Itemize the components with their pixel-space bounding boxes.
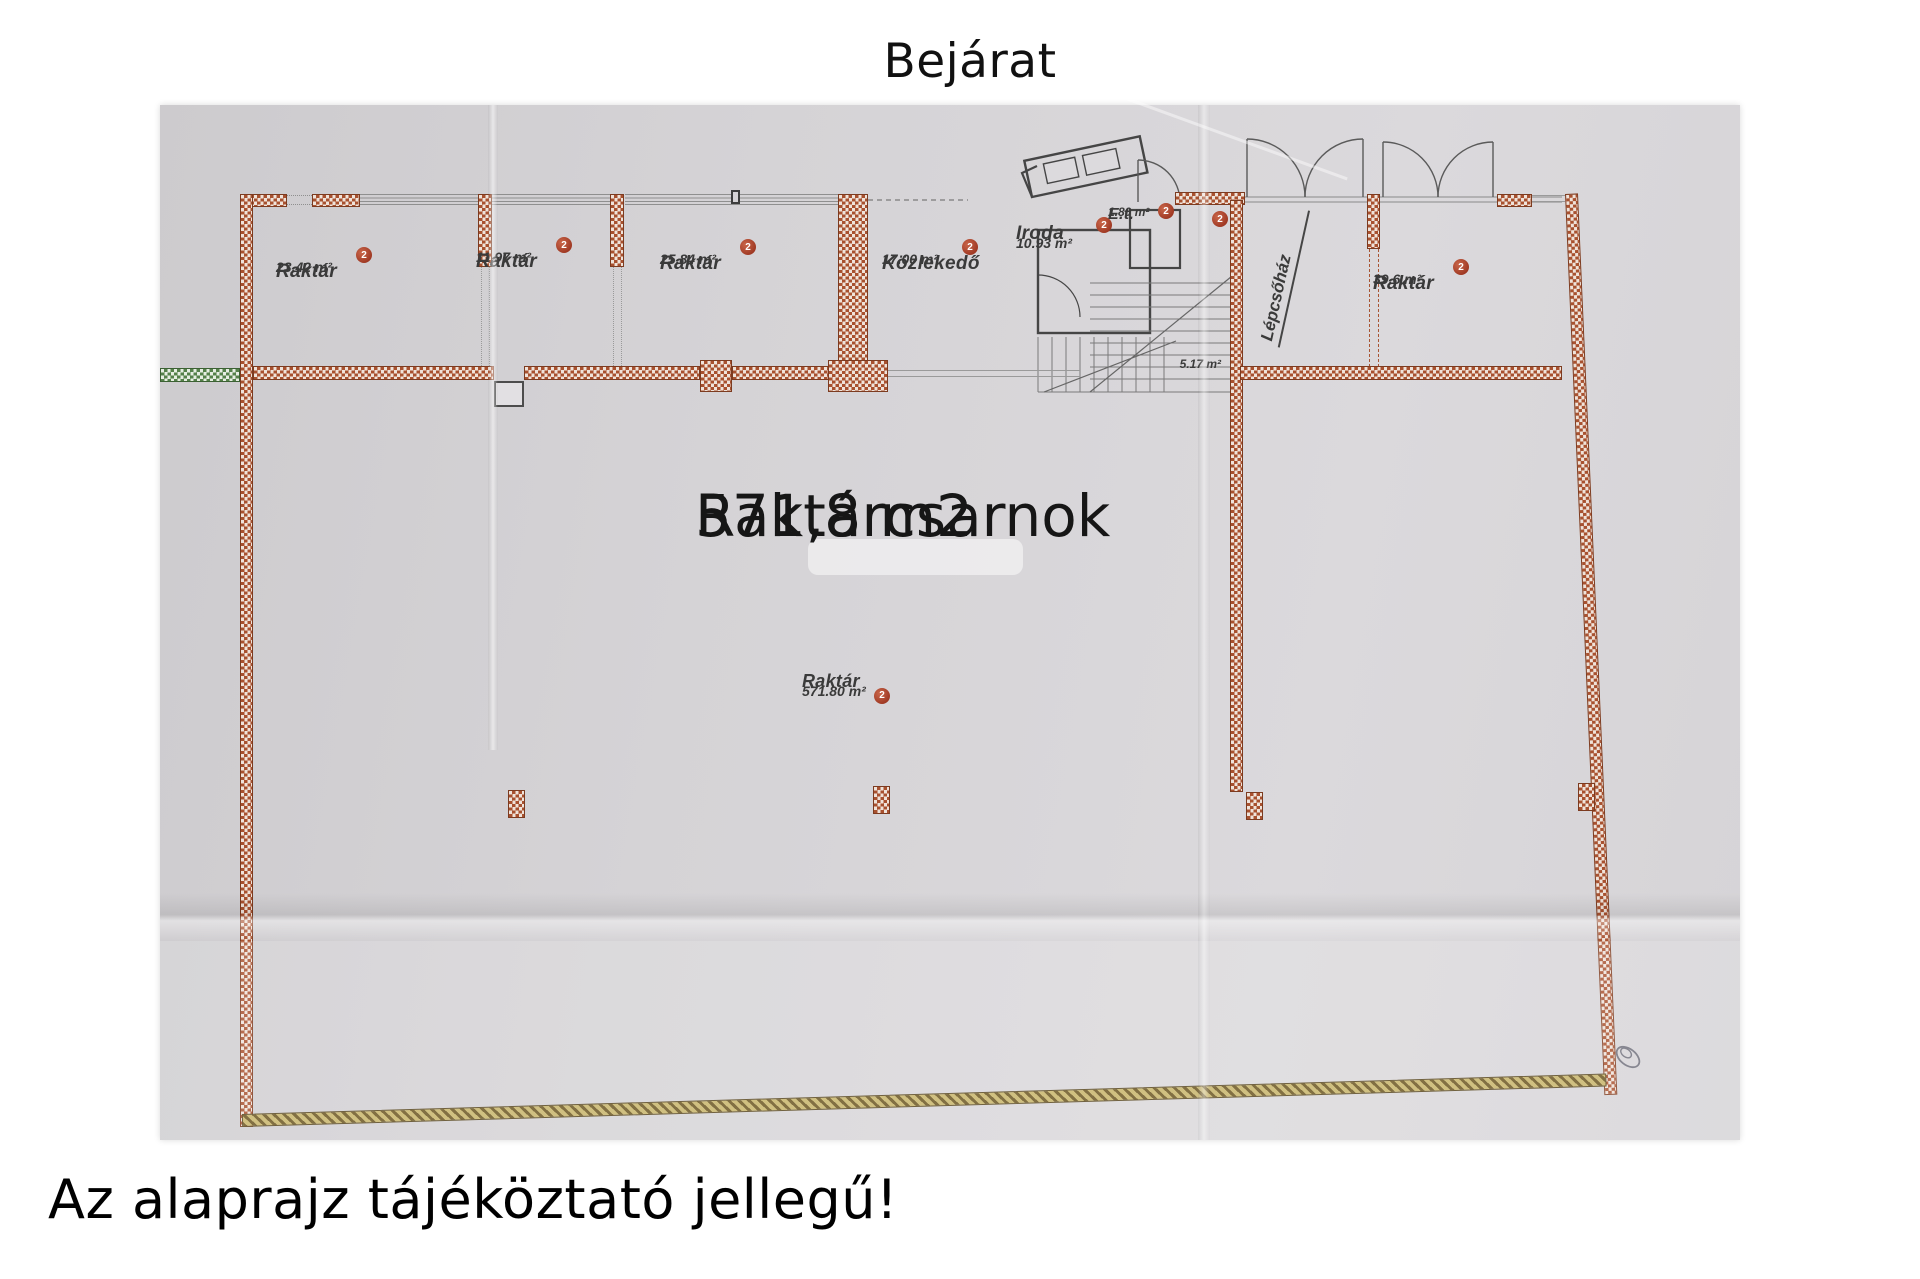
hall-divider-door [494,381,524,407]
room-area: 10.93 m² [1016,235,1072,251]
room-area: 17.00 m² [882,251,938,267]
window-band-1 [360,194,478,206]
wall-pier-2 [828,360,888,392]
wall-top-segment-4 [1497,194,1532,207]
wall-top-segment-2 [312,194,360,207]
wall-hall-divider-2 [524,366,700,380]
wall-green-segment [160,368,240,382]
hall-area-big: 571,8 m2 [695,483,973,550]
room-marker: 2 [874,688,890,704]
wall-partition-2 [610,194,624,267]
wall-staircase [1230,200,1243,792]
wall-hall-divider-4 [1240,366,1562,380]
room-area: 25.84 m² [660,251,716,267]
room-area: 11.97 m² [476,249,531,265]
room-area: 1.80 m² [1108,205,1149,219]
wall-raktar4-left-dotted [1369,249,1379,367]
hall-column-1 [508,790,525,818]
room-label-hall: Raktár 571.80 m² 2 [802,671,962,704]
entrance-double-door-2 [1383,142,1493,197]
room-marker: 2 [356,247,372,263]
paper-below-fold-shade [160,941,1740,1140]
entrance-pier [1367,194,1380,249]
bay-window-outline [1024,136,1147,197]
window-tick [731,190,740,204]
room-marker: 2 [1158,203,1174,219]
window-band-2 [492,194,610,206]
wall-hall-divider-3 [732,366,838,380]
hall-column-4 [1578,783,1595,811]
paper-fold-horizontal [160,893,1740,941]
staircase-marker: 2 [1212,211,1228,227]
paper-crease-vertical-1 [488,105,498,750]
room-area: 571.80 m² [802,683,866,699]
room-marker: 2 [740,239,756,255]
room-area: 39.6 m² [1373,271,1421,287]
wall-partition-2-dotted [613,267,622,366]
wall-pier-1 [700,360,732,392]
hall-column-2 [873,786,890,814]
room-marker: 2 [1453,259,1469,275]
room-marker: 2 [556,237,572,253]
wall-top-thin-line [1532,195,1565,202]
hall-divider-opening [888,370,1080,377]
wall-hall-divider-1 [253,366,494,380]
disclaimer-note: Az alaprajz tájéköztató jellegű! [48,1168,898,1231]
entrance-title: Bejárat [883,34,1056,89]
floorplan-paper: 2 Raktár 23.42 m² 2 Raktár 11.97 m² 2 Ra… [160,105,1740,1140]
room-area: 23.42 m² [276,259,332,275]
et-door-swing [1138,160,1180,202]
hall-column-3 [1246,792,1263,820]
wall-top-door-gap [287,195,312,205]
